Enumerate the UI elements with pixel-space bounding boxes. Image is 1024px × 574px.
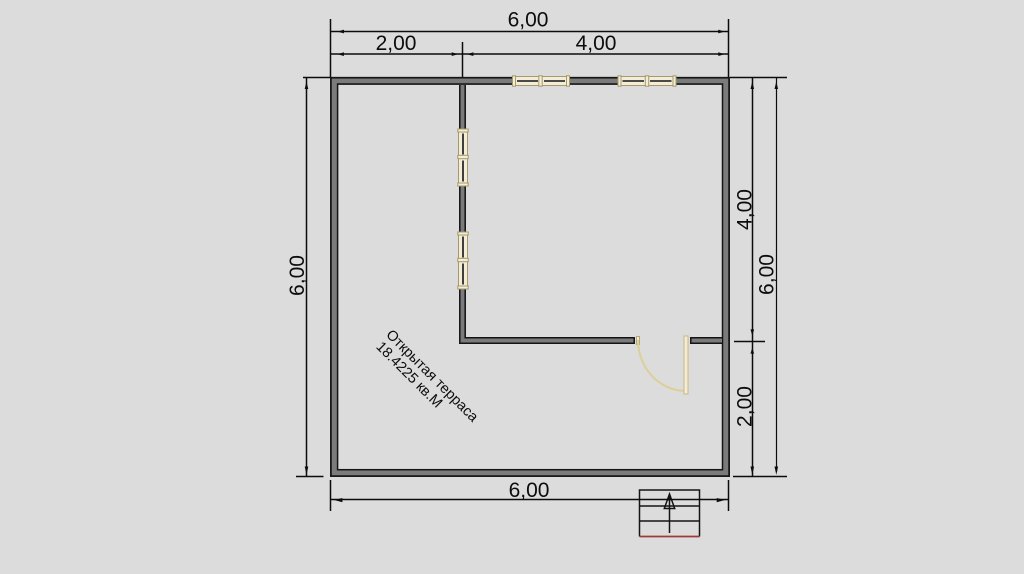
svg-text:2,00: 2,00 [734,386,757,427]
svg-text:4,00: 4,00 [734,189,757,230]
svg-text:6,00: 6,00 [508,9,549,32]
svg-text:6,00: 6,00 [509,479,550,502]
svg-text:6,00: 6,00 [286,255,309,296]
svg-text:6,00: 6,00 [756,254,779,295]
svg-text:4,00: 4,00 [576,32,617,55]
svg-text:2,00: 2,00 [376,32,417,55]
